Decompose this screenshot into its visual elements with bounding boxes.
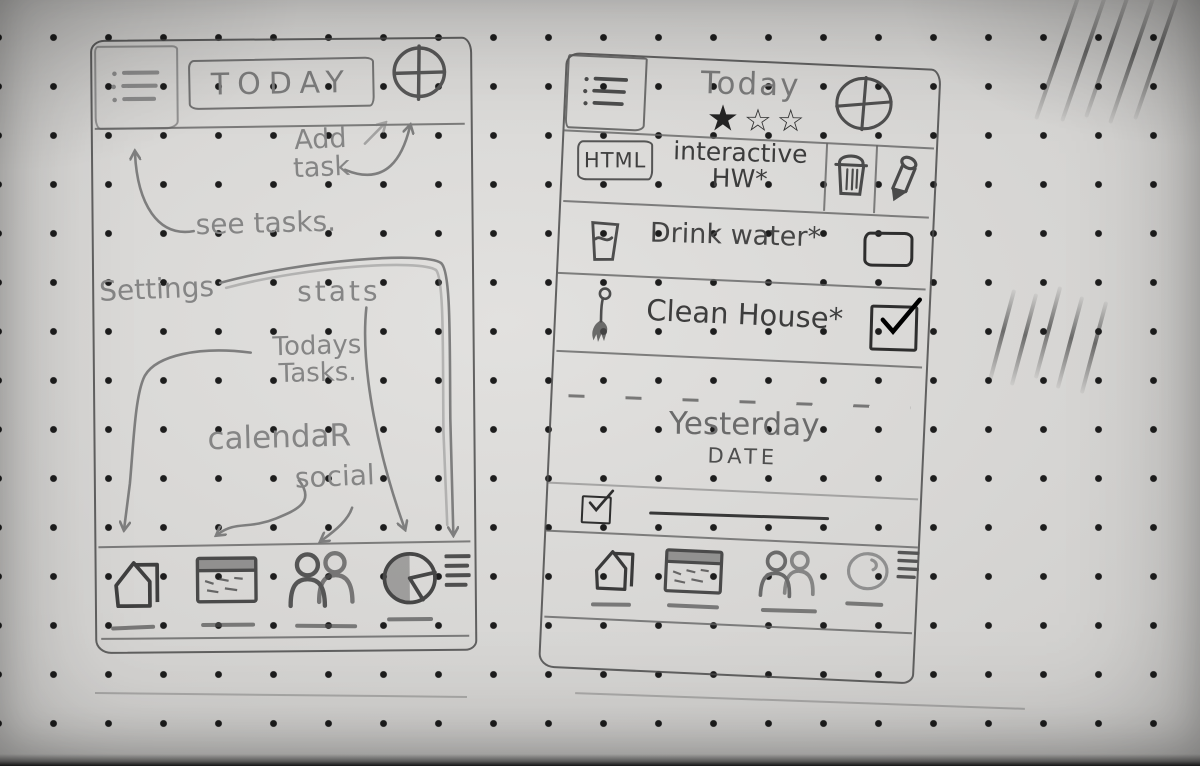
star-outline-icon[interactable]: ☆: [744, 103, 777, 139]
nav-calendar-underline: [667, 603, 719, 609]
task-title: Clean House*: [646, 295, 844, 334]
nav-circle-underline: [845, 601, 883, 607]
nav-calendar-icon[interactable]: [661, 547, 725, 598]
nav-people-icon[interactable]: [284, 550, 363, 611]
menu-button[interactable]: [94, 45, 179, 130]
annotation-add-task: Add task: [262, 123, 380, 185]
nav-circle-icon[interactable]: [844, 549, 892, 593]
task-checkbox-empty[interactable]: [863, 232, 913, 268]
annotation-todays-tasks: Todays Tasks.: [249, 331, 385, 389]
paper-bottom-edge: [0, 754, 1200, 766]
title-box: TODAY: [188, 57, 375, 111]
arrow-calendar: [218, 480, 306, 534]
bullet-list-icon: [579, 71, 633, 115]
task-title: Drink water*: [649, 219, 821, 252]
nav-home-underline: [111, 625, 155, 631]
nav-people-underline: [295, 624, 357, 629]
row-divider-vertical: [823, 143, 828, 211]
nav-bar-top-divider: [98, 540, 470, 548]
annotation-settings: Settings: [99, 272, 215, 306]
nav-home-icon[interactable]: [587, 542, 639, 596]
edit-task-button[interactable]: [881, 153, 921, 207]
annotation-stats: stats: [297, 276, 381, 306]
nav-people-icon[interactable]: [755, 547, 823, 602]
screen-title: TODAY: [211, 64, 353, 102]
badge-text: HTML: [584, 148, 646, 172]
nav-bar-bottom-divider: [101, 635, 469, 640]
section-subtitle: DATE: [638, 443, 849, 471]
nav-calendar-icon[interactable]: [194, 555, 258, 608]
nav-calendar-underline: [201, 623, 255, 627]
nav-pie-chart-icon[interactable]: [380, 549, 439, 608]
nav-bar-bottom-divider: [544, 616, 912, 635]
star-filled-icon[interactable]: ★: [706, 98, 744, 139]
water-glass-icon: [586, 218, 622, 265]
nav-menu-icon[interactable]: [444, 552, 470, 592]
target-plus-icon: [833, 73, 896, 134]
task-tag-badge: HTML: [577, 140, 653, 180]
annotation-see-tasks: see tasks.: [195, 207, 336, 240]
right-wireframe-screen: Today ★☆☆ HTML interactive HW* Drink wat…: [538, 52, 942, 684]
completed-task-checkbox[interactable]: [581, 495, 612, 524]
trash-icon: [832, 148, 870, 200]
annotation-social: social: [294, 460, 375, 493]
brush-icon: [589, 284, 618, 345]
bullet-list-icon: [108, 64, 164, 110]
arrow-social: [322, 508, 352, 540]
check-icon: [876, 292, 923, 345]
star-outline-icon[interactable]: ☆: [777, 103, 810, 139]
menu-button[interactable]: [565, 54, 648, 132]
check-icon: [586, 485, 615, 518]
nav-menu-icon[interactable]: [896, 548, 920, 585]
section-title: Yesterday: [639, 407, 849, 442]
nav-home-underline: [591, 602, 631, 606]
add-task-button[interactable]: [833, 73, 896, 134]
task-checkbox-checked[interactable]: [869, 304, 918, 351]
arrow-see-tasks: [135, 153, 194, 232]
add-task-button[interactable]: [390, 44, 449, 103]
plus-circle-icon: [390, 44, 449, 103]
row-divider: [556, 350, 922, 369]
row-divider-vertical: [873, 145, 878, 213]
paper-crease-left: [95, 692, 467, 698]
annotation-calendar: calendaR: [207, 419, 351, 455]
nav-people-underline: [761, 608, 817, 614]
left-wireframe-screen: TODAY Add task see tasks. Setting: [90, 37, 477, 654]
delete-task-button[interactable]: [832, 148, 870, 200]
star-rating[interactable]: ★☆☆: [693, 98, 823, 140]
pencil-icon: [881, 153, 921, 207]
nav-home-icon[interactable]: [106, 553, 165, 612]
nav-pie-underline: [387, 617, 433, 621]
task-title: interactive HW*: [656, 138, 823, 195]
completed-task-text-line: [649, 512, 829, 521]
paper-crease-right: [575, 692, 1025, 710]
paper-photo: TODAY Add task see tasks. Setting: [0, 0, 1200, 766]
